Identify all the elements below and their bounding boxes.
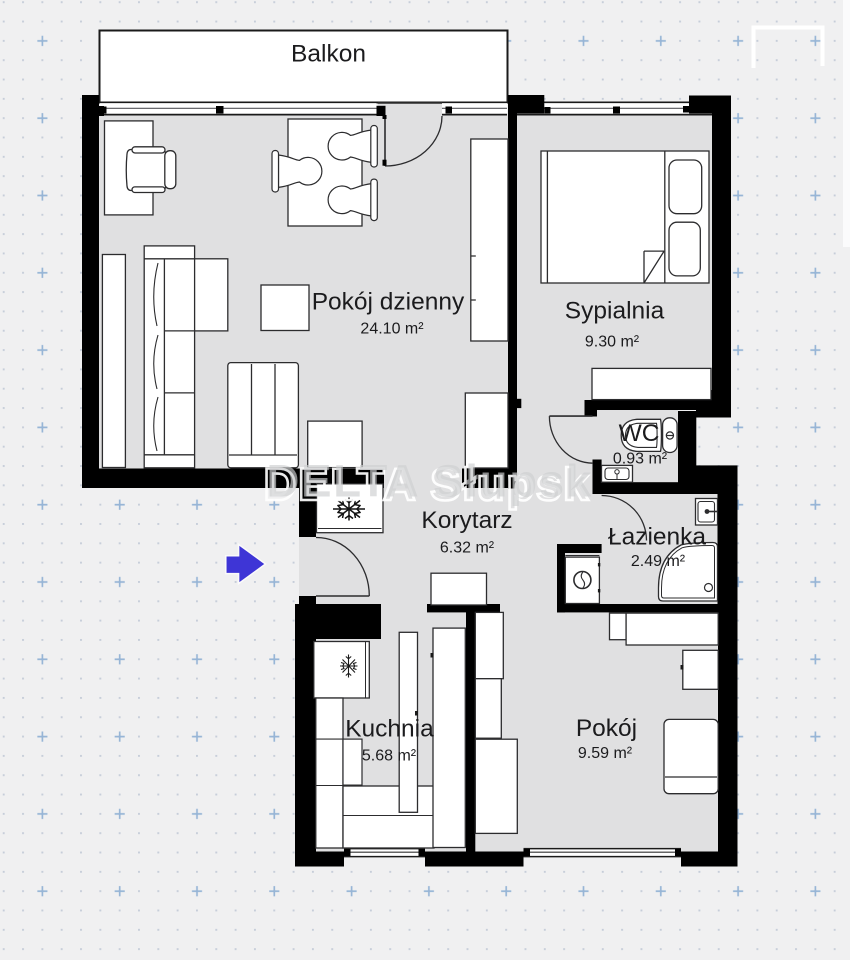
svg-text:Sypialnia: Sypialnia <box>565 298 665 325</box>
svg-text:DELTA Słupsk: DELTA Słupsk <box>267 456 594 507</box>
svg-text:Balkon: Balkon <box>291 41 366 68</box>
svg-text:Łazienka: Łazienka <box>608 524 706 551</box>
svg-text:Korytarz: Korytarz <box>421 507 512 534</box>
svg-text:24.10 m²: 24.10 m² <box>360 321 424 338</box>
svg-text:Kuchnia: Kuchnia <box>345 716 434 743</box>
svg-text:WC: WC <box>619 420 660 447</box>
svg-text:6.32 m²: 6.32 m² <box>440 540 495 557</box>
svg-text:2.49 m²: 2.49 m² <box>631 553 686 570</box>
svg-text:9.30 m²: 9.30 m² <box>585 334 640 351</box>
svg-text:5.68 m²: 5.68 m² <box>362 748 417 765</box>
svg-text:Pokój: Pokój <box>576 715 637 742</box>
svg-text:0.93 m²: 0.93 m² <box>613 451 668 468</box>
svg-text:9.59 m²: 9.59 m² <box>578 745 633 762</box>
svg-text:Pokój dzienny: Pokój dzienny <box>312 289 465 316</box>
